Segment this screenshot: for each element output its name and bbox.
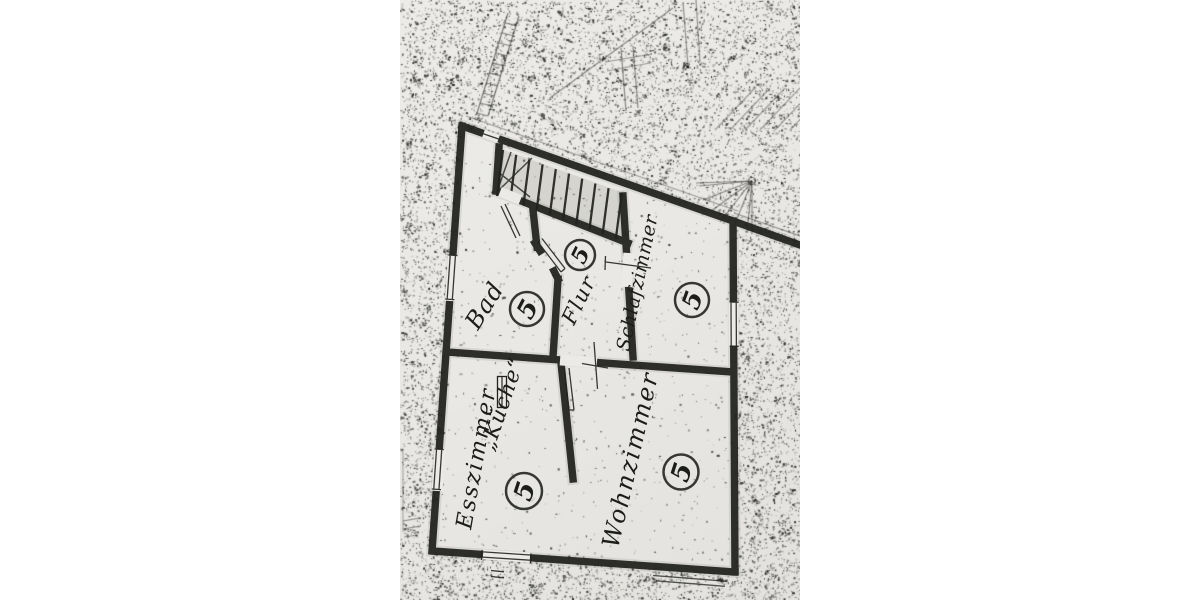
- floorplan-drawing: Bad Flur Schlafzimmer Esszimmer „Küche“ …: [400, 0, 800, 600]
- screenshot-root: Bad Flur Schlafzimmer Esszimmer „Küche“ …: [0, 0, 1200, 600]
- room-number-schlafzimmer: 5: [675, 283, 709, 317]
- svg-text:5: 5: [665, 459, 699, 485]
- room-number-esszimmer: 5: [506, 473, 542, 509]
- window-bottom-wohnzimmer: [653, 576, 727, 587]
- svg-text:5: 5: [676, 287, 709, 313]
- page-margin-right: [800, 0, 1200, 600]
- room-label-wohnzimmer: Wohnzimmer: [597, 369, 665, 551]
- window-right-schlafzimmer: [729, 302, 739, 346]
- room-label-bad: Bad: [459, 277, 510, 335]
- room-number-bad: 5: [510, 292, 544, 326]
- room-number-flur: 5: [565, 240, 596, 270]
- page-margin-left: [0, 0, 400, 600]
- scanned-floorplan-photo: Bad Flur Schlafzimmer Esszimmer „Küche“ …: [400, 0, 800, 600]
- room-number-wohnzimmer: 5: [664, 455, 700, 490]
- room-numbers: 5 5 5 5 5: [506, 240, 709, 509]
- window-bottom-esszimmer: [481, 549, 531, 577]
- svg-text:5: 5: [508, 478, 542, 504]
- door-stair-foot: [498, 187, 522, 238]
